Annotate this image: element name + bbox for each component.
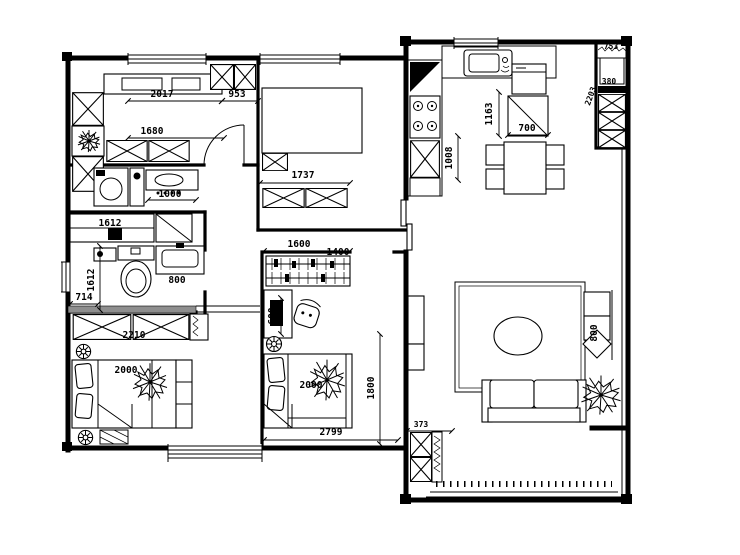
wardrobe-icon xyxy=(73,93,104,126)
pillar-icon xyxy=(410,432,442,482)
cabinet-icon xyxy=(599,130,626,147)
pillow-icon xyxy=(75,363,93,389)
tv-cabinet-icon xyxy=(408,296,424,370)
wardrobe-icon xyxy=(210,65,233,90)
sink-icon xyxy=(156,243,204,274)
wardrobe-icon xyxy=(263,153,288,170)
door-arc-icon xyxy=(204,125,244,165)
threshold-band xyxy=(68,306,196,313)
corner-cabinet-icon xyxy=(410,62,440,92)
dimension-label-bath-cabinet: 1612 xyxy=(99,218,122,229)
room-bedroom-2 xyxy=(264,256,352,428)
wall-column xyxy=(62,52,72,61)
dimension-label-bedroom2-width: 2799 xyxy=(320,427,343,438)
plant-icon xyxy=(581,375,620,414)
wardrobe-icon xyxy=(107,140,147,161)
wall-column xyxy=(400,36,411,46)
rug-icon xyxy=(100,430,128,444)
dimension-label-bath-sink: 800 xyxy=(168,275,185,286)
dimension-label-bedroom2-desk: 600 xyxy=(267,307,278,324)
dimension-label-bedroom2-wardrobe: 1600 xyxy=(288,239,311,250)
window-icon xyxy=(260,53,340,65)
chair-icon xyxy=(546,169,564,189)
stove-icon xyxy=(410,96,440,138)
dimension-label-bedroom3-bed: 2000 xyxy=(115,365,138,376)
dimension-label-bedroom1-width: 2017 xyxy=(151,89,174,100)
chair-icon xyxy=(486,169,504,189)
dimension-label-bedroom2-depth: 1800 xyxy=(366,376,377,399)
window-icon xyxy=(426,484,622,497)
dimension-label-study-bed: 1737 xyxy=(292,170,315,181)
cabinet-icon xyxy=(130,168,144,206)
cabinet-icon xyxy=(599,94,626,111)
dimension-label-utility-top: 753 xyxy=(604,42,619,51)
room-utility-column xyxy=(596,44,628,148)
pillow-icon xyxy=(267,385,285,410)
chair-icon xyxy=(546,145,564,165)
washer-icon xyxy=(94,168,128,206)
shelf-icon xyxy=(598,86,626,93)
chair-icon xyxy=(486,145,504,165)
cabinet-icon xyxy=(410,178,440,196)
window-icon xyxy=(454,37,498,49)
ceiling-light-icon xyxy=(78,430,92,444)
toilet-icon xyxy=(118,246,154,297)
room-study xyxy=(262,88,362,208)
bedside-icon xyxy=(176,360,192,428)
pillow-icon xyxy=(75,393,93,418)
dimension-label-sofa-side: 800 xyxy=(589,324,600,341)
wall-column xyxy=(62,442,72,451)
cabinet-icon xyxy=(599,112,626,129)
shelf-icon xyxy=(156,214,192,242)
sofa-icon xyxy=(482,380,586,422)
dimension-label-kitchen-cabinet: 700 xyxy=(518,123,535,134)
dimension-label-bedroom1-right: 953 xyxy=(228,89,245,100)
ceiling-light-icon xyxy=(76,344,90,358)
dimension-label-bedroom2-entry: 1400 xyxy=(327,247,350,258)
wardrobe-icon xyxy=(234,65,255,90)
room-dining xyxy=(486,142,564,194)
dimension-label-bath-depth: 1612 xyxy=(86,269,97,292)
wardrobe-icon xyxy=(306,188,347,207)
wardrobe-icon xyxy=(149,140,189,161)
cabinet-icon xyxy=(411,141,440,177)
coffee-table-icon xyxy=(494,317,542,355)
dimension-label-kitchen-fridge: 1163 xyxy=(484,102,495,125)
dimension-label-bedroom1-wardrobe: 1680 xyxy=(141,126,164,137)
dimension-label-bath-offset: 714 xyxy=(75,292,92,303)
dimension-label-vanity: 1000 xyxy=(159,189,182,200)
window-icon xyxy=(128,53,206,65)
wardrobe-icon xyxy=(263,188,304,207)
dimension-label-bedroom2-bed: 2000 xyxy=(300,380,323,391)
dimension-label-utility-shelf: 380 xyxy=(602,77,617,86)
desk-chair-icon xyxy=(292,297,322,329)
room-hall xyxy=(401,200,412,250)
window-icon xyxy=(61,262,70,292)
wall-column xyxy=(400,494,411,504)
bed-icon xyxy=(264,354,352,428)
pillow-icon xyxy=(267,357,285,383)
room-living xyxy=(408,282,621,482)
floor-plan-canvas: 2017 953 1680 1737 1000 1612 1612 714 80… xyxy=(0,0,740,555)
bed-icon xyxy=(262,88,362,153)
ceiling-light-icon xyxy=(267,337,282,352)
wardrobe-hangers-icon xyxy=(266,256,350,286)
floor-plan-drawing: 2017 953 1680 1737 1000 1612 1612 714 80… xyxy=(0,0,740,555)
dining-table-icon xyxy=(504,142,546,194)
fridge-icon xyxy=(512,64,546,94)
dimension-label-kitchen-counter: 1008 xyxy=(444,146,455,169)
wardrobe-track-icon xyxy=(190,314,208,340)
dimension-label-bedroom3-wardrobe: 2210 xyxy=(123,330,146,341)
sliding-door-icon xyxy=(401,200,412,250)
window-icon xyxy=(168,444,262,462)
wall-column xyxy=(621,494,632,504)
kitchen-sink-icon xyxy=(464,50,512,76)
dimension-label-tv-wall: 373 xyxy=(414,420,429,429)
